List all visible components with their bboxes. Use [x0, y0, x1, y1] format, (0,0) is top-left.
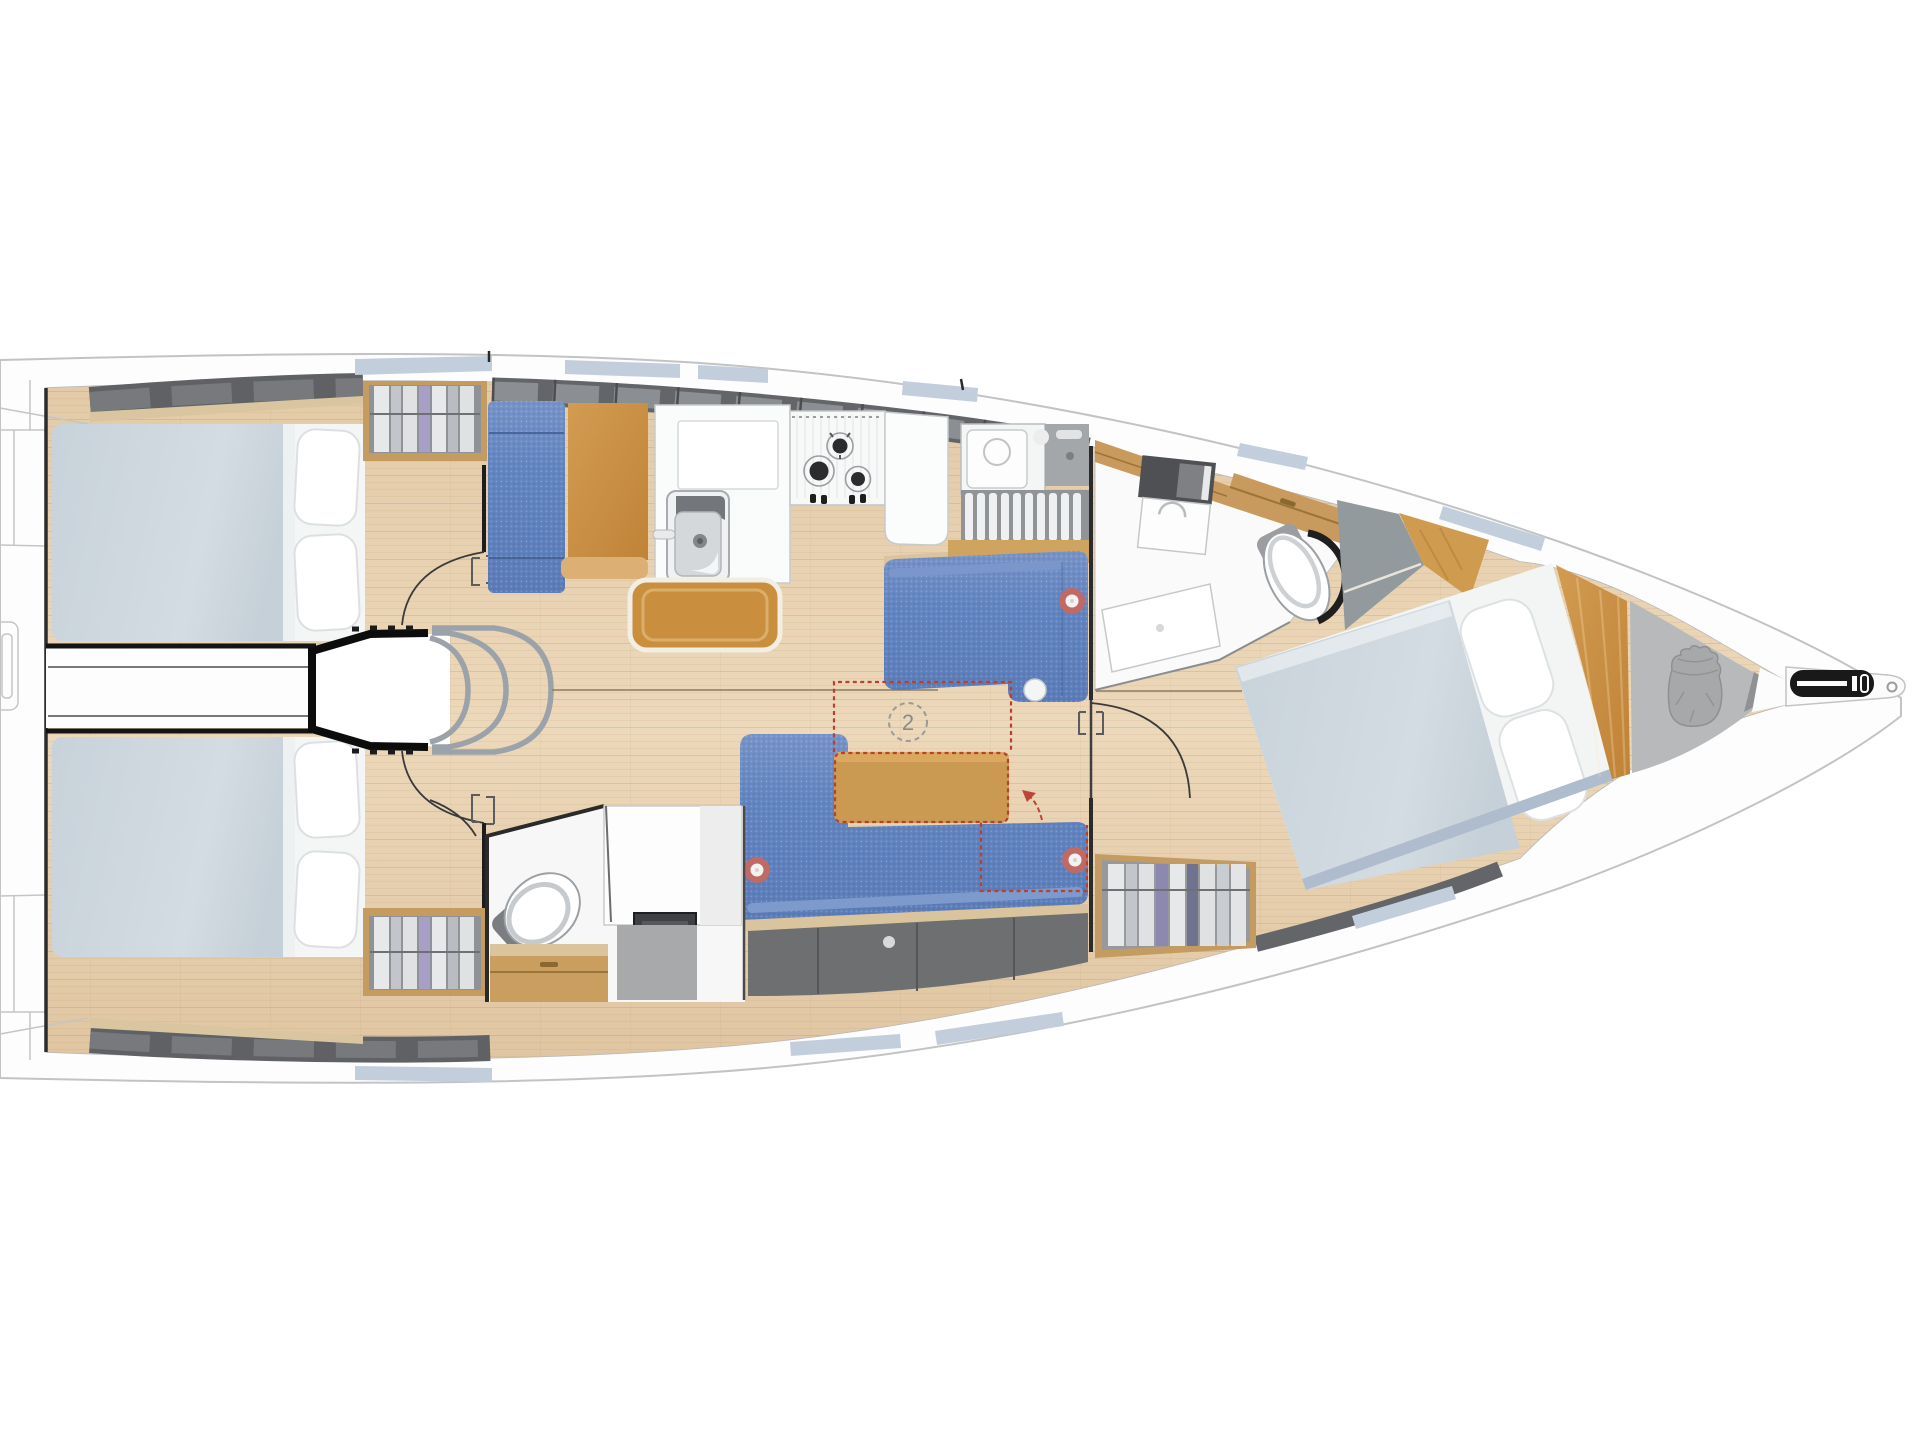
svg-text:2: 2 — [902, 710, 914, 735]
